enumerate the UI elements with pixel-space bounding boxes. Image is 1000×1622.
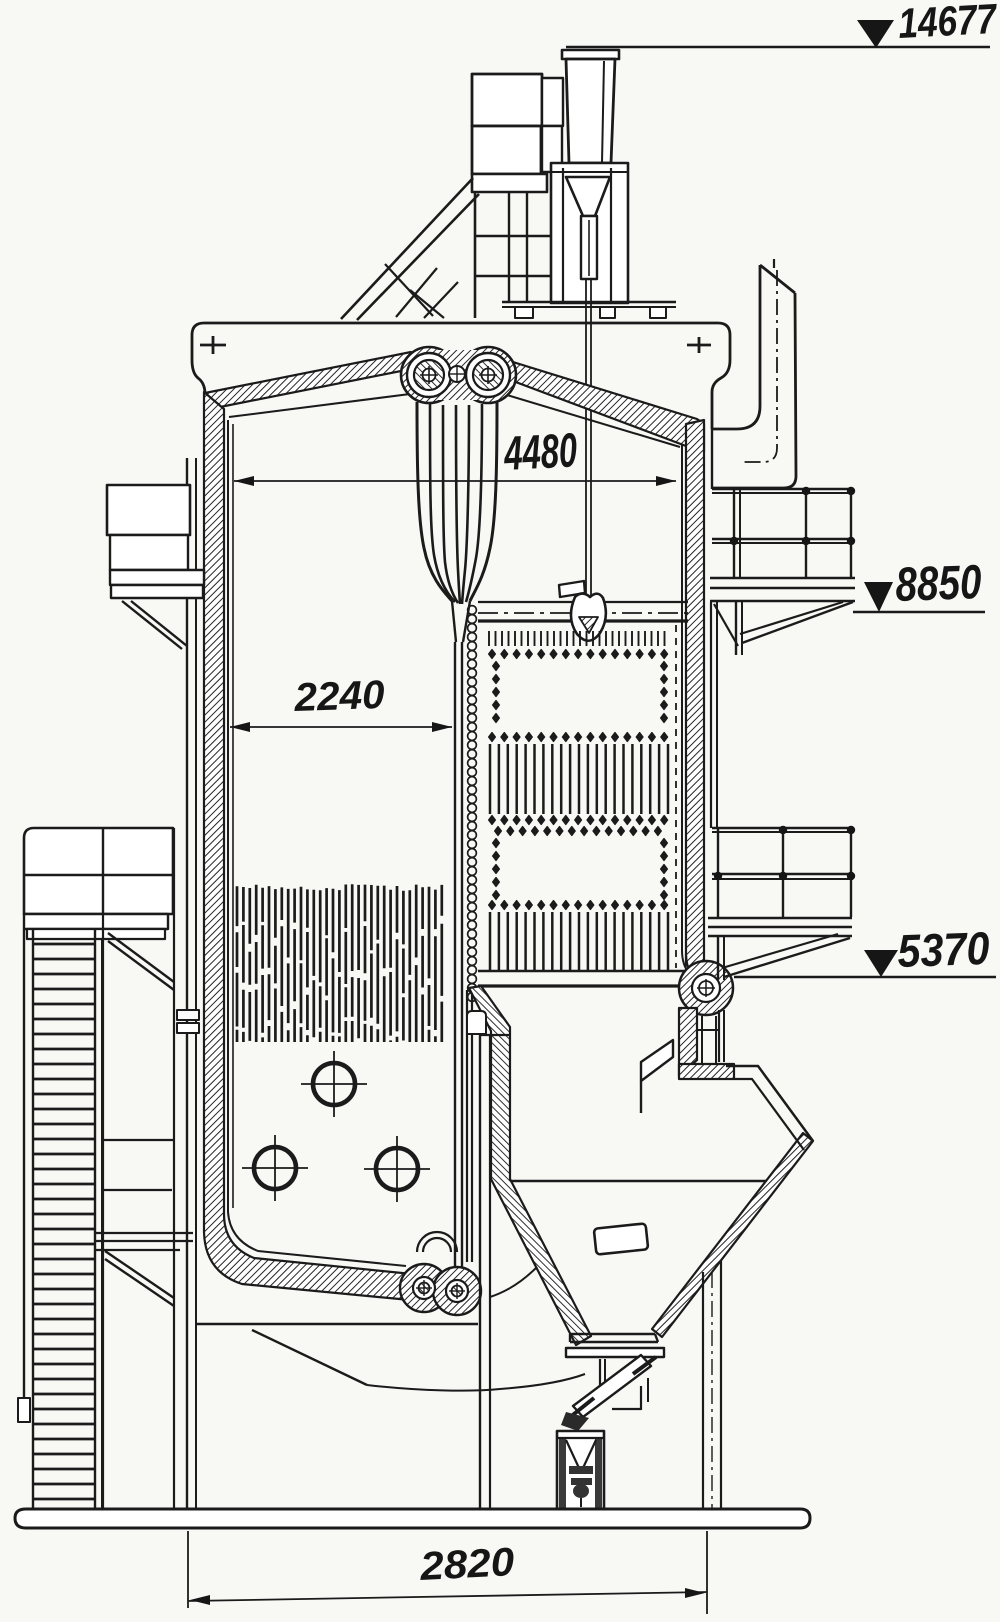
svg-text:14677: 14677 [897, 0, 999, 47]
svg-text:5370: 5370 [897, 922, 991, 977]
svg-text:8850: 8850 [895, 556, 983, 612]
svg-text:4480: 4480 [502, 424, 579, 481]
svg-text:2240: 2240 [293, 673, 385, 720]
svg-text:2820: 2820 [418, 1540, 515, 1589]
